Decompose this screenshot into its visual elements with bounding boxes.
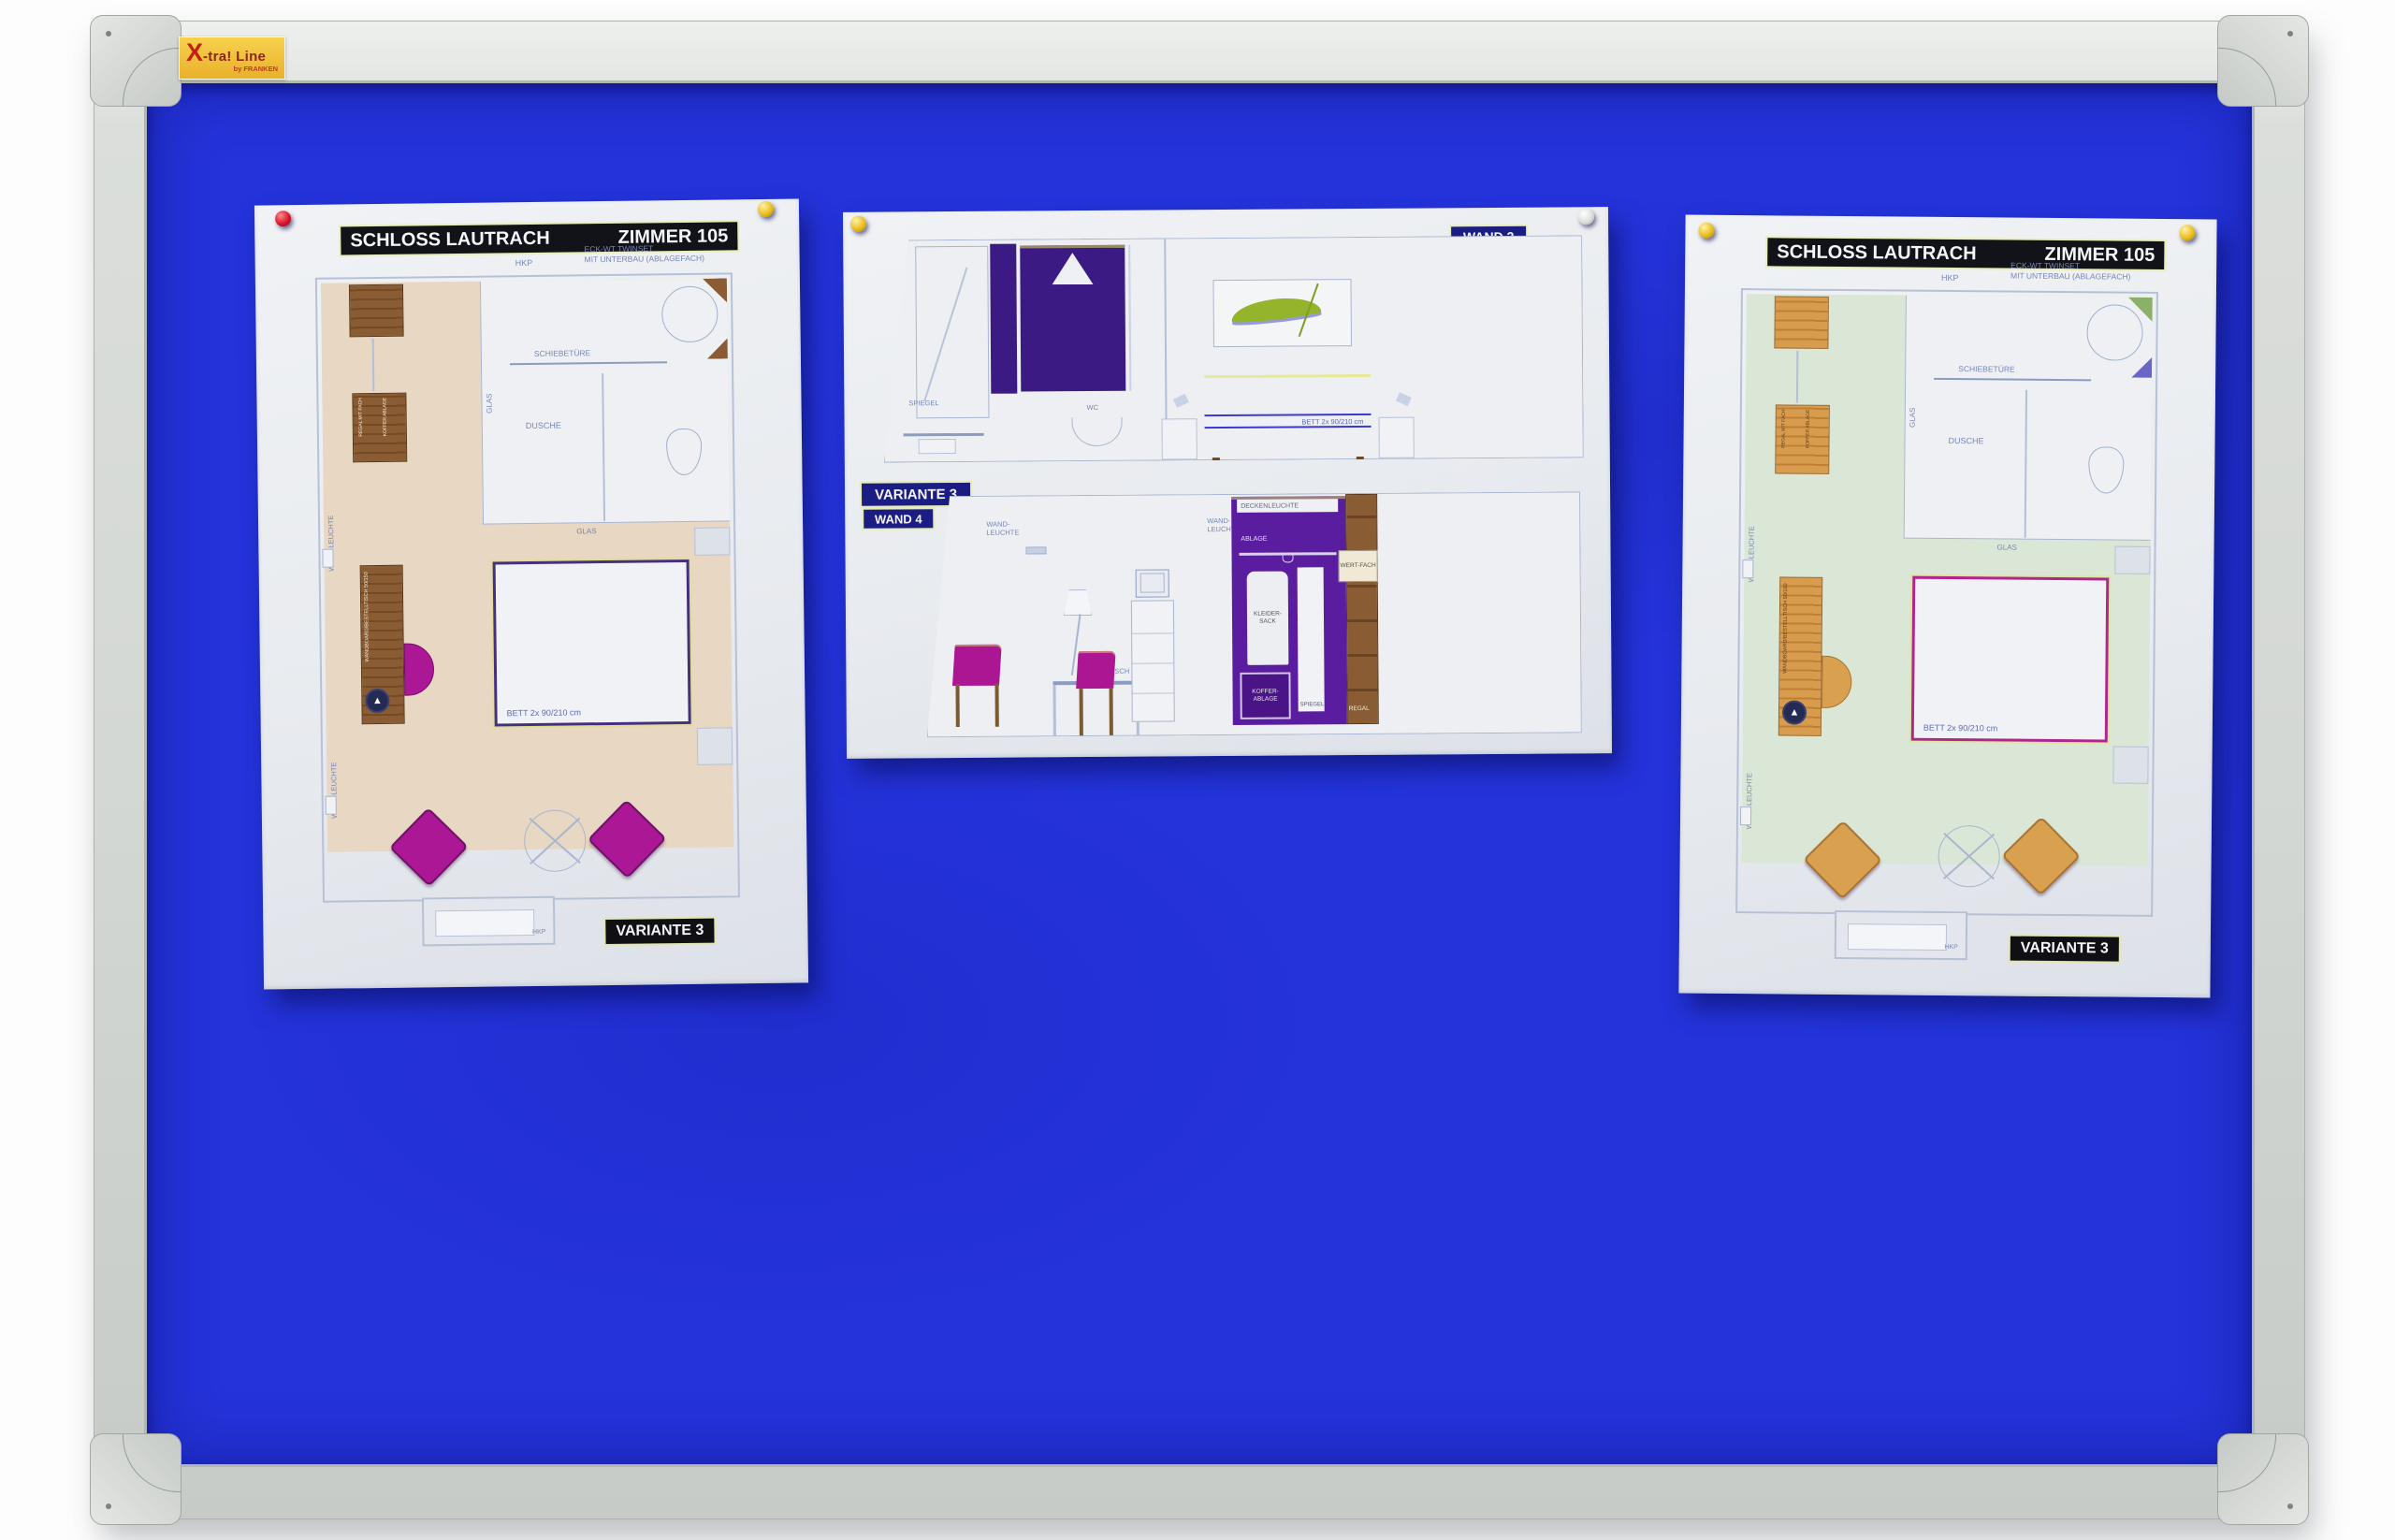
toilet <box>2088 446 2124 493</box>
bed: BETT 2x 90/210 cm <box>1911 576 2110 743</box>
corner-cap-bottom-left <box>90 1433 181 1525</box>
shower-label: DUSCHE <box>1948 436 1983 446</box>
note-hkp: HKP <box>515 258 533 269</box>
yellow-pushpin-icon <box>2179 225 2195 240</box>
floorplan: SCHIEBETÜRE DUSCHE GLAS GLAS REGAL MIT F… <box>1735 288 2158 917</box>
window-sill <box>435 909 534 937</box>
garment-bag: KLEIDER-SACK <box>1247 572 1289 665</box>
hanger-hook-icon <box>1283 555 1294 563</box>
compass-glyph: ▲ <box>372 695 383 706</box>
elevation-wall4: WAND-LEUCHTE WAND-LEUCHTE SCHREIBTISCH <box>925 491 1582 737</box>
bath-mirror <box>915 246 989 419</box>
brand-rest: -tra! Line <box>203 51 266 64</box>
wardrobe-regal-label: REGAL MIT FACH <box>1781 409 1786 447</box>
desk-leg <box>1053 685 1056 735</box>
note-hkp: HKP <box>1941 273 1959 283</box>
wall-light-a <box>1025 546 1046 554</box>
desk-label: WANDBOARD/BESTELLTISCH 50/150 <box>1783 583 1790 673</box>
red-pushpin-icon <box>275 211 291 226</box>
corner-cap-top-right <box>2217 15 2309 107</box>
shelf-column <box>1345 494 1379 724</box>
bed-headboard: BETT 2x 90/210 cm <box>1204 374 1372 458</box>
compass-logo-icon: ▲ <box>365 689 389 713</box>
elevation-wall2: SPIEGEL ABLAGE WC BETT 2x 90/210 cm <box>882 235 1584 462</box>
corner-sink <box>2086 304 2143 361</box>
nightstand-bottom <box>697 727 733 764</box>
bed-leg <box>1212 458 1220 471</box>
shower-wall-panel <box>990 244 1017 394</box>
wall-light-lower <box>326 796 337 815</box>
note-line2: MIT UNTERBAU (ABLAGEFACH) <box>585 254 704 265</box>
corner-wedge <box>2131 357 2152 378</box>
bed-label: BETT 2x 90/210 cm <box>506 707 580 718</box>
sliding-door-label: SCHIEBETÜRE <box>534 349 591 359</box>
variant-label: VARIANTE 3 <box>616 923 704 940</box>
yellow-pushpin-icon <box>850 216 866 232</box>
silver-pushpin-icon <box>1578 209 1594 225</box>
wardrobe-shelf-label: ABLAGE <box>1241 536 1267 544</box>
shelf-column-label: REGAL <box>1349 705 1370 712</box>
ceiling-light-bar: DECKENLEUCHTE <box>1237 499 1338 513</box>
corner-cap-bottom-right <box>2217 1433 2309 1525</box>
pendant-lamp-icon <box>1052 253 1093 284</box>
product-photo-scene: X -tra! Line by FRANKEN SCHLOSS LAUTRACH… <box>0 0 2395 1540</box>
bed-label: BETT 2x 90/210 cm <box>1301 417 1363 426</box>
chair-leg <box>994 684 998 727</box>
compass-logo-icon: ▲ <box>1782 700 1807 724</box>
ceiling-light-label: DECKENLEUCHTE <box>1241 502 1299 509</box>
wall4-bar: WAND 4 <box>864 509 933 529</box>
header-bar: SCHLOSS LAUTRACH ZIMMER 105 <box>1767 238 2164 269</box>
safe-box-label: WERT-FACH <box>1341 562 1376 570</box>
mirror-reflection-line <box>923 267 967 400</box>
plan-sheet-left: SCHLOSS LAUTRACH ZIMMER 105 HKP ECK-WT T… <box>254 198 808 989</box>
suitcase-shelf-label: KOFFER-ABLAGE <box>1242 689 1289 704</box>
wardrobe-top <box>1774 296 1828 349</box>
floorplan: SCHIEBETÜRE DUSCHE GLAS GLAS REGAL MIT F… <box>315 272 740 902</box>
corner-cabinet-wedge <box>707 338 728 358</box>
corner-cap-top-left <box>90 15 181 107</box>
window-sill <box>1848 923 1947 951</box>
desk-chair <box>1076 651 1116 689</box>
wardrobe-regal-label: REGAL MIT FACH <box>358 398 364 436</box>
shower-partition <box>2025 390 2027 538</box>
shower-label: DUSCHE <box>526 421 561 431</box>
bathroom-area: SCHIEBETÜRE DUSCHE GLAS <box>480 278 730 524</box>
chair-leg <box>1080 689 1083 735</box>
window-hkp-label: HKP <box>1944 944 1957 951</box>
wardrobe-elevation: DECKENLEUCHTE ABLAGE KLEIDER-SACK KOFFER… <box>1231 496 1347 725</box>
drawer-cabinet <box>1131 600 1175 721</box>
mirror-label: SPIEGEL <box>908 400 938 408</box>
chair-leg <box>1110 689 1113 735</box>
shower-elevation <box>1020 245 1125 392</box>
bathroom-area: SCHIEBETÜRE DUSCHE GLAS <box>1904 296 2153 541</box>
wardrobe-shelf: REGAL MIT FACH KOFFER ABLAGE <box>1775 404 1830 474</box>
safe-box: WERT-FACH <box>1339 550 1378 582</box>
wall-light-upper <box>322 549 333 568</box>
nightstand-bottom <box>2112 747 2148 784</box>
glass-wall-label: GLAS <box>1909 408 1917 428</box>
variant-bar: VARIANTE 3 <box>605 919 714 944</box>
glass-bottom-label: GLAS <box>576 527 596 535</box>
header-bar: SCHLOSS LAUTRACH ZIMMER 105 <box>341 222 737 254</box>
shower-partition <box>602 373 604 521</box>
washbasin <box>919 439 956 454</box>
drawer-line <box>1133 692 1174 693</box>
chair-side <box>952 645 1002 686</box>
bay-window: HKP <box>1835 910 1967 960</box>
tv-monitor <box>1136 569 1169 597</box>
glass-bottom-label: GLAS <box>1997 543 2017 551</box>
wc-elevation <box>1072 417 1123 446</box>
note-line1: ECK-WT TWINSET <box>584 244 653 254</box>
plan-sheet-middle: WAND 2 SPIEGEL ABLAGE WC <box>843 207 1612 759</box>
variant-bar: VARIANTE 3 <box>2010 937 2119 962</box>
variant-label: VARIANTE 3 <box>2021 940 2109 958</box>
wall-light-upper <box>1742 559 1753 578</box>
bay-window: HKP <box>422 896 556 947</box>
desk-label: WANDBOARD/BESTELLTISCH 50/150 <box>365 572 371 661</box>
bed-leg <box>1357 457 1364 470</box>
glass-wall-label: GLAS <box>486 393 493 413</box>
wall-light-lower <box>1740 806 1751 825</box>
wardrobe-top <box>349 284 404 338</box>
variant-label: VARIANTE 3 <box>875 487 957 503</box>
round-table <box>524 809 587 872</box>
nightstand-right <box>1379 417 1415 458</box>
drawer-line <box>1132 662 1173 663</box>
note-line1: ECK-WT TWINSET <box>2010 262 2080 271</box>
bed-label: BETT 2x 90/210 cm <box>1923 723 1997 734</box>
yellow-pushpin-icon <box>1698 223 1714 239</box>
wardrobe-koffer-label: KOFFER ABLAGE <box>1806 410 1810 448</box>
sliding-door-label: SCHIEBETÜRE <box>1958 365 2015 374</box>
nightstand-left <box>1162 418 1197 459</box>
window-hkp-label: HKP <box>532 929 545 936</box>
plan-sheet-right: SCHLOSS LAUTRACH ZIMMER 105 HKP ECK-WT T… <box>1678 215 2216 998</box>
chair-leg <box>955 684 959 727</box>
corner-sink <box>661 286 718 343</box>
table-lamp-icon <box>1173 394 1189 408</box>
compass-glyph: ▲ <box>1789 707 1799 719</box>
sliding-door-line <box>510 361 667 365</box>
round-table <box>1938 825 2000 888</box>
nightstand-top <box>2114 546 2150 574</box>
toilet <box>666 429 703 475</box>
sliding-door-line <box>1934 378 2091 381</box>
wardrobe-shelf: REGAL MIT FACH KOFFER ABLAGE <box>352 393 407 463</box>
bed: BETT 2x 90/210 cm <box>493 559 691 727</box>
brand-x-letter: X <box>186 41 203 64</box>
brand-sticker: X -tra! Line by FRANKEN <box>179 36 285 80</box>
nightstand-top <box>694 527 730 555</box>
sink-counter <box>904 433 984 437</box>
wardrobe-mirror: SPIEGEL <box>1298 567 1325 711</box>
plan-title: SCHLOSS LAUTRACH <box>1777 241 1977 265</box>
note-line2: MIT UNTERBAU (ABLAGEFACH) <box>2010 272 2130 283</box>
bed-stripe: BETT 2x 90/210 cm <box>1204 414 1371 429</box>
brand-name: X -tra! Line <box>186 41 278 64</box>
table-lamp-icon <box>1396 392 1412 406</box>
plan-title: SCHLOSS LAUTRACH <box>350 227 550 252</box>
wardrobe-koffer-label: KOFFER ABLAGE <box>383 398 388 436</box>
wall-artwork <box>1212 279 1351 347</box>
wardrobe-mirror-label: SPIEGEL <box>1300 702 1325 707</box>
suitcase-shelf: KOFFER-ABLAGE <box>1240 673 1290 719</box>
garment-bag-label: KLEIDER-SACK <box>1247 611 1288 626</box>
drawer-line <box>1132 632 1173 633</box>
wall4-label: WAND 4 <box>875 512 922 526</box>
glass-door-line <box>1128 245 1131 391</box>
wc-label: WC <box>1086 404 1098 413</box>
yellow-pushpin-icon <box>758 201 774 217</box>
wall-light-label-a: WAND-LEUCHTE <box>986 520 1029 537</box>
desk-lamp-shade-icon <box>1064 589 1092 616</box>
